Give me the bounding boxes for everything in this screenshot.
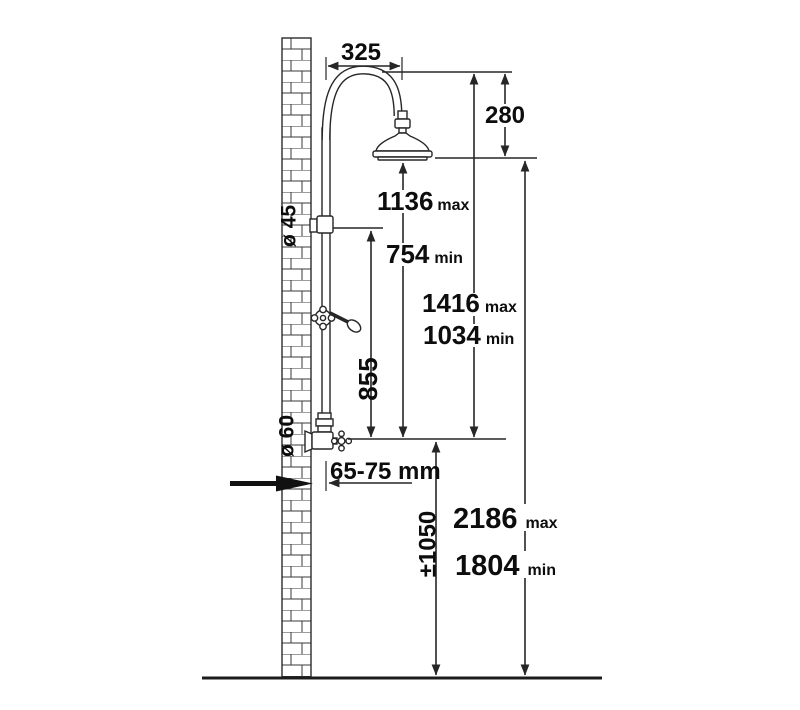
label-bracket-diameter: ø 45	[277, 205, 300, 247]
riser-pipe	[322, 128, 330, 414]
upper-bracket	[310, 216, 333, 233]
label-inlet-height: ±1050	[414, 511, 441, 578]
label-wall-distance: 65-75 mm	[330, 458, 441, 485]
label-arch-to-valve-min: 1034min	[423, 320, 514, 350]
label-head-drop: 280	[485, 102, 525, 129]
label-arch-to-valve-max: 1416max	[422, 288, 517, 318]
label-valve-diameter: ø 60	[275, 415, 298, 457]
label-riser-length: 855	[353, 357, 383, 400]
dimension-drawing: 325 280 1136max 754min 1416max 1034min 8…	[0, 0, 800, 710]
label-arm-width: 325	[341, 39, 381, 66]
lower-valve	[305, 413, 351, 452]
brick-wall	[282, 38, 311, 677]
label-head-to-valve-max: 1136max	[377, 186, 470, 216]
shower-head	[373, 133, 432, 160]
shower-diagram-svg: 325 280 1136max 754min 1416max 1034min 8…	[0, 0, 800, 710]
dimension-labels: 325 280 1136max 754min 1416max 1034min 8…	[275, 39, 557, 582]
diverter-valve	[311, 306, 363, 334]
shower-arch	[326, 70, 398, 140]
label-head-to-valve-min: 754min	[386, 239, 463, 269]
